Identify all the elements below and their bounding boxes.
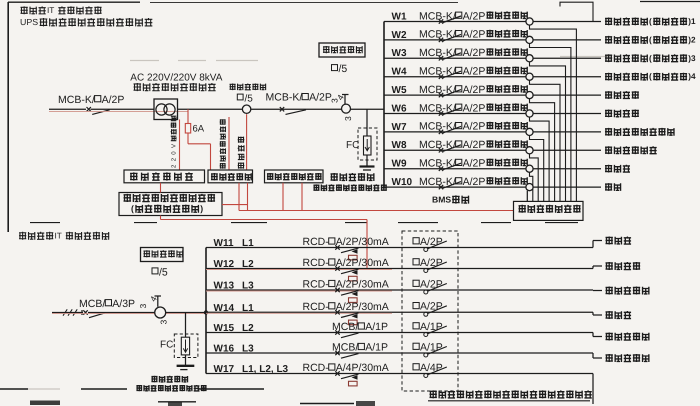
svg-text:A/2P: A/2P	[420, 301, 443, 313]
svg-text:A/2P/30mA: A/2P/30mA	[336, 236, 389, 248]
svg-text:MCB/: MCB/	[332, 342, 358, 354]
svg-text:A/2P: A/2P	[420, 278, 443, 290]
svg-text:A/2P: A/2P	[463, 66, 486, 78]
svg-text:A/1P: A/1P	[365, 342, 388, 354]
svg-text:W8: W8	[392, 140, 407, 151]
svg-text:A/2P: A/2P	[463, 10, 486, 22]
svg-text:A/3P: A/3P	[112, 298, 135, 310]
svg-text:W13: W13	[214, 281, 235, 292]
svg-text:A/2P: A/2P	[463, 158, 486, 170]
svg-text:MCB-K/: MCB-K/	[419, 66, 456, 78]
svg-text:)3: )3	[688, 54, 696, 63]
svg-text:MCB/: MCB/	[332, 321, 358, 333]
svg-text:A/1P: A/1P	[365, 321, 388, 333]
svg-text:RCD-: RCD-	[303, 236, 330, 248]
svg-text:L1: L1	[242, 303, 254, 314]
svg-text:W2: W2	[392, 30, 407, 41]
svg-text:V: V	[170, 144, 177, 148]
svg-text:L1: L1	[242, 238, 254, 249]
svg-text:A/2P: A/2P	[102, 94, 125, 106]
svg-text:(: (	[131, 204, 134, 214]
svg-text:MCB-K/: MCB-K/	[419, 121, 456, 133]
svg-text:A/2P: A/2P	[420, 236, 443, 248]
svg-text:RCD-: RCD-	[303, 362, 330, 374]
svg-text:MCB-K/: MCB-K/	[419, 139, 456, 151]
svg-text:L3: L3	[242, 344, 254, 355]
svg-text:MCB-K/: MCB-K/	[419, 29, 456, 41]
svg-text:0: 0	[170, 151, 177, 155]
svg-text:/5: /5	[159, 266, 168, 278]
svg-text:W11: W11	[214, 238, 234, 249]
svg-text:A/2P: A/2P	[463, 102, 486, 114]
svg-text:A/2P/30mA: A/2P/30mA	[336, 257, 389, 269]
svg-text:3: 3	[159, 320, 169, 325]
svg-text:MCB-K/: MCB-K/	[419, 158, 456, 170]
svg-text:W9: W9	[392, 159, 407, 170]
svg-text:W10: W10	[392, 177, 413, 188]
svg-text:IT: IT	[55, 230, 62, 240]
svg-text:)4: )4	[688, 72, 696, 81]
svg-text:L2: L2	[242, 323, 254, 334]
svg-text:)2: )2	[688, 35, 696, 44]
svg-text:W1: W1	[392, 11, 407, 22]
svg-text:AC 220V/220V 8kVA: AC 220V/220V 8kVA	[130, 73, 222, 84]
svg-text:A/2P: A/2P	[463, 47, 486, 59]
svg-text:W15: W15	[214, 323, 235, 334]
svg-text:(: (	[649, 72, 652, 81]
svg-text:(: (	[649, 17, 652, 26]
svg-text:RCD-: RCD-	[303, 301, 330, 313]
svg-text:6A: 6A	[193, 124, 205, 135]
svg-text:L1, L2, L3: L1, L2, L3	[242, 364, 289, 375]
svg-text:3: 3	[138, 304, 148, 309]
svg-text:MCB-K/: MCB-K/	[419, 10, 456, 22]
svg-text:UPS: UPS	[20, 17, 38, 27]
svg-text:MCB-K/: MCB-K/	[266, 92, 303, 104]
svg-text:MCB-K/: MCB-K/	[58, 94, 95, 106]
svg-text:(: (	[649, 35, 652, 44]
svg-text:A/2P: A/2P	[463, 29, 486, 41]
svg-text:(: (	[649, 54, 652, 63]
svg-text:W5: W5	[392, 85, 407, 96]
svg-text:MCB-K/: MCB-K/	[419, 176, 456, 188]
svg-text:2: 2	[170, 157, 177, 161]
svg-text:3: 3	[343, 116, 353, 121]
svg-text:W16: W16	[214, 344, 235, 355]
svg-text:W14: W14	[214, 303, 235, 314]
svg-text:A/2P: A/2P	[420, 257, 443, 269]
svg-text:RCD-: RCD-	[303, 279, 330, 291]
svg-text:A/2P/30mA: A/2P/30mA	[336, 279, 389, 291]
svg-text:W3: W3	[392, 48, 407, 59]
svg-text:A/1P: A/1P	[420, 341, 443, 353]
svg-text:/5: /5	[339, 63, 348, 75]
svg-text:A/2P: A/2P	[309, 92, 332, 104]
svg-text:): )	[200, 204, 203, 214]
svg-text:A/4P: A/4P	[420, 362, 443, 374]
svg-text:MCB-K/: MCB-K/	[419, 84, 456, 96]
svg-text:W12: W12	[214, 259, 235, 270]
svg-text:MCB-K/: MCB-K/	[419, 102, 456, 114]
svg-text:MCB-K/: MCB-K/	[419, 47, 456, 59]
svg-text:MCB/: MCB/	[79, 298, 105, 310]
svg-text:L3: L3	[242, 281, 254, 292]
svg-text:IT: IT	[47, 5, 54, 15]
svg-text:A/4P/30mA: A/4P/30mA	[336, 362, 389, 374]
svg-text:/5: /5	[245, 93, 254, 104]
svg-text:A/2P/30mA: A/2P/30mA	[336, 301, 389, 313]
svg-text:3: 3	[330, 98, 340, 103]
svg-text:RCD-: RCD-	[303, 257, 330, 269]
svg-text:W6: W6	[392, 103, 407, 114]
svg-text:L2: L2	[242, 259, 254, 270]
svg-text:W7: W7	[392, 122, 407, 133]
svg-text:FC: FC	[346, 140, 359, 151]
svg-text:FC: FC	[160, 339, 173, 350]
svg-text:W4: W4	[392, 67, 407, 78]
svg-text:A/2P: A/2P	[463, 176, 486, 188]
svg-text:W17: W17	[214, 364, 235, 375]
svg-text:A/2P: A/2P	[463, 139, 486, 151]
svg-text:A/2P: A/2P	[463, 84, 486, 96]
svg-text:BMS: BMS	[432, 194, 451, 204]
svg-text:A/1P: A/1P	[420, 321, 443, 333]
svg-text:2: 2	[170, 164, 177, 168]
svg-text:)1: )1	[688, 17, 696, 26]
svg-text:A/2P: A/2P	[463, 121, 486, 133]
